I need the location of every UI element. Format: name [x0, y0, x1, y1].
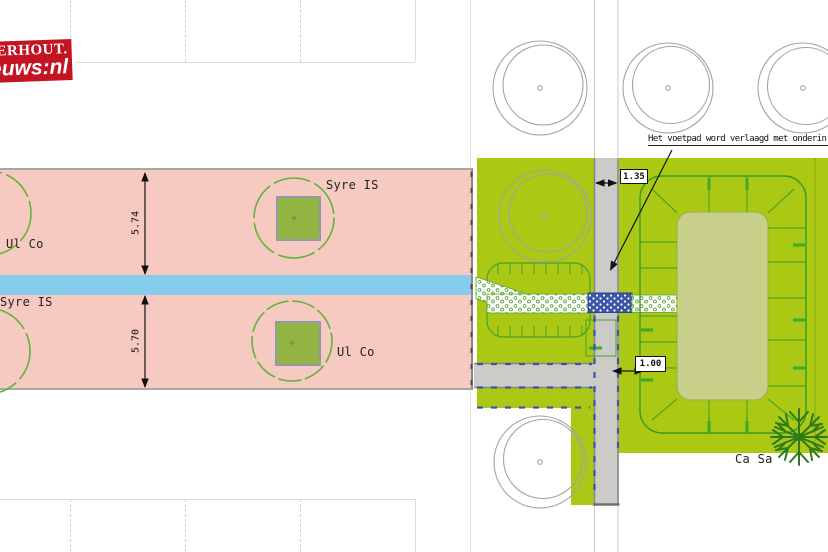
dim-label-100: 1.00 — [635, 356, 666, 372]
gravel-band-left — [487, 294, 590, 313]
crossing-bands — [476, 277, 677, 313]
footpath-edges — [474, 158, 620, 505]
blue-paving-crossing — [588, 293, 632, 313]
plan-detail-overlay — [0, 0, 828, 552]
gravel-band-right — [632, 295, 677, 313]
site-plan-canvas: Syre IS Ul Co Syre IS Ul Co Ca Sa 5.74 5… — [0, 0, 828, 552]
tree-syre-icon — [254, 178, 334, 258]
tree-label-syre-left: Syre IS — [0, 295, 53, 309]
tree-label-ul-mid: Ul Co — [337, 345, 375, 359]
dimension-lines — [145, 150, 672, 387]
tree-label-ul-left: Ul Co — [6, 237, 44, 251]
voetpad-annotation: Het voetpad word verlaagd met onderin ee — [648, 134, 828, 146]
tree-canopy-icon — [494, 416, 586, 508]
tree-label-syre-top: Syre IS — [326, 178, 379, 192]
tree-canopy-icon — [758, 43, 828, 133]
block-building — [677, 212, 768, 400]
new-tree-icons — [0, 171, 334, 394]
tree-label-ca-sa: Ca Sa — [735, 452, 773, 466]
nieuws-logo-badge: TERHOUT. euws:nl — [0, 39, 73, 84]
tree-canopy-icon — [623, 43, 713, 133]
footpath-corridor-lines — [595, 0, 619, 552]
tree-canopy-icon — [499, 170, 591, 262]
tree-syre-left-icon — [0, 308, 30, 394]
annotation-leader-line — [611, 150, 673, 270]
dim-label-570: 5.70 — [131, 329, 142, 353]
tree-ul-icon — [252, 301, 332, 381]
tree-canopy-icon — [493, 41, 587, 135]
dim-label-574: 5.74 — [131, 211, 142, 235]
logo-line2: euws:nl — [0, 58, 69, 81]
ramp-marking — [586, 320, 616, 356]
dim-label-135: 1.35 — [620, 169, 648, 184]
branched-tree-icon — [771, 409, 827, 465]
kerb-dashes — [477, 316, 618, 498]
